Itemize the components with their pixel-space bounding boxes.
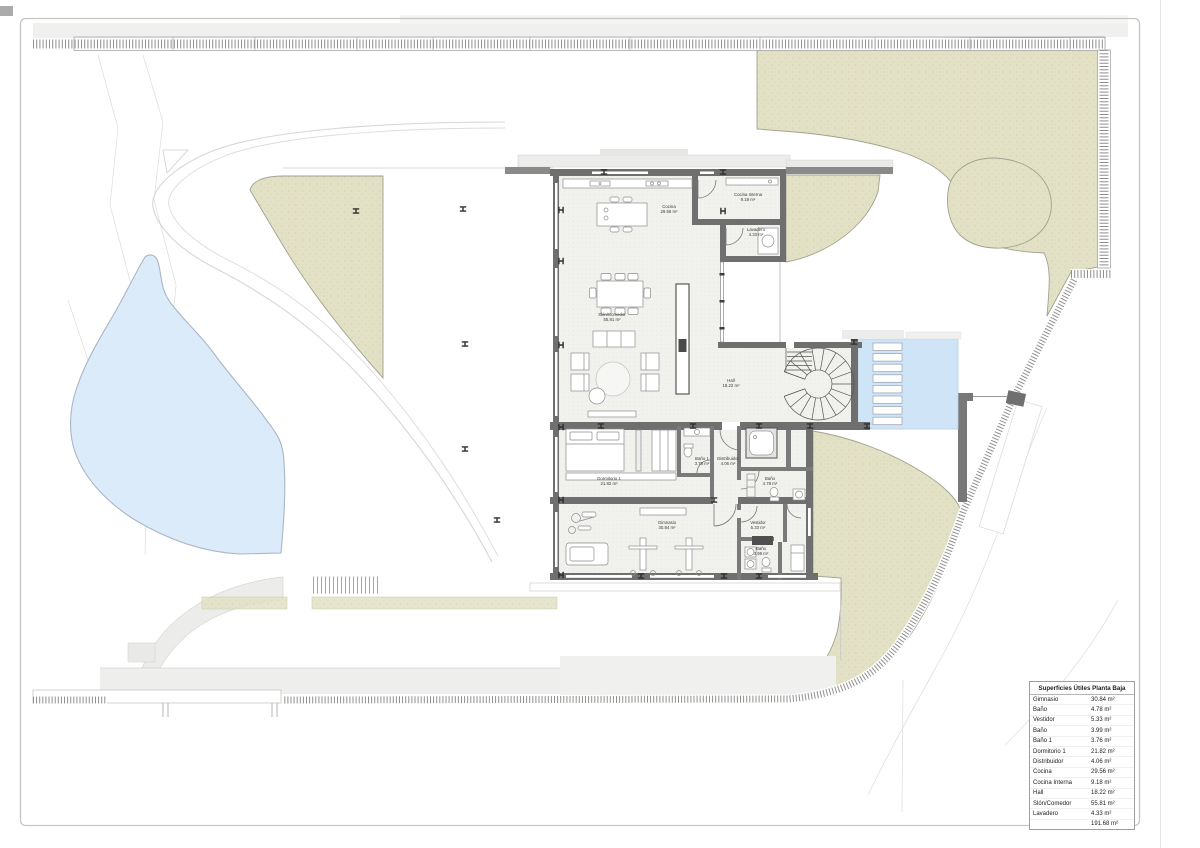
- room-label: Slón/Comedor55.81 m²: [598, 313, 626, 323]
- kitchen-counter: [563, 179, 692, 188]
- areas-table-row: Slón/Comedor55.81 m²: [1030, 798, 1134, 808]
- garden-island: [948, 158, 1052, 248]
- planter-strip: [202, 597, 287, 609]
- areas-table-row: Distribuidor4.06 m²: [1030, 756, 1134, 766]
- areas-table-row: Baño4.78 m²: [1030, 704, 1134, 714]
- swimming-pool: [858, 339, 958, 429]
- room-label: Lavadero4.33 m²: [747, 228, 765, 238]
- corridor-shelves: [791, 545, 804, 571]
- room-label: Cocina Interna9.18 m²: [734, 193, 762, 203]
- areas-table-row: Cocina29.56 m²: [1030, 767, 1134, 777]
- site-plan-drawing: [0, 0, 1200, 848]
- lower-terrace-band: [560, 656, 836, 696]
- areas-table-total-row: 191.68 m²: [1030, 819, 1134, 829]
- retaining-walls: [958, 390, 1042, 534]
- room-label: Baño 13.76 m²: [695, 457, 710, 467]
- areas-table-row: Hall18.22 m²: [1030, 788, 1134, 798]
- areas-table-title: Superficies Útiles Planta Baja: [1030, 682, 1134, 695]
- dresser: [752, 536, 773, 545]
- room-label: Vestidor5.33 m²: [750, 521, 766, 531]
- room-label: Dormitorio 121.82 m²: [597, 477, 621, 487]
- floor-plan-sheet: Cocina29.56 m² Cocina Interna9.18 m² Lav…: [0, 0, 1200, 848]
- garden-top-left: [250, 176, 383, 378]
- courtyard-window-wall: [720, 262, 781, 342]
- tv-bench: [588, 411, 636, 417]
- planter-strip: [312, 597, 557, 609]
- room-label: Hall18.22 m²: [722, 379, 739, 389]
- areas-table-row: Gimnasio30.84 m²: [1030, 695, 1134, 704]
- sheet-corner-mark: [0, 6, 13, 16]
- room-label: Baño4.78 m²: [763, 477, 778, 487]
- areas-table-row: Lavadero4.33 m²: [1030, 808, 1134, 818]
- walkway-posts: [163, 703, 277, 717]
- bathtub: [746, 428, 777, 458]
- areas-table-row: Cocina Interna9.18 m²: [1030, 777, 1134, 787]
- areas-table-row: Dormitorio 121.82 m²: [1030, 746, 1134, 756]
- room-label: Gimnasio30.84 m²: [658, 521, 676, 531]
- room-label: Baño3.99 m²: [754, 547, 769, 557]
- sloped-path: [979, 399, 1042, 533]
- drive-entrance-mark: [163, 150, 188, 173]
- curved-ramp: [142, 577, 283, 668]
- fireplace: [676, 284, 689, 394]
- areas-table: Superficies Útiles Planta Baja Gimnasio3…: [1029, 681, 1135, 830]
- house-rear-terrace-edge: [530, 583, 840, 591]
- areas-table-row: Baño 13.76 m²: [1030, 736, 1134, 746]
- areas-table-row: Baño3.99 m²: [1030, 725, 1134, 735]
- pond: [71, 255, 285, 554]
- garden-house-corner: [786, 175, 880, 262]
- room-label: Distribuidor4.06 m²: [717, 457, 739, 467]
- areas-table-row: Vestidor5.33 m²: [1030, 715, 1134, 725]
- bed: [566, 429, 624, 471]
- room-label: Cocina29.56 m²: [660, 205, 677, 215]
